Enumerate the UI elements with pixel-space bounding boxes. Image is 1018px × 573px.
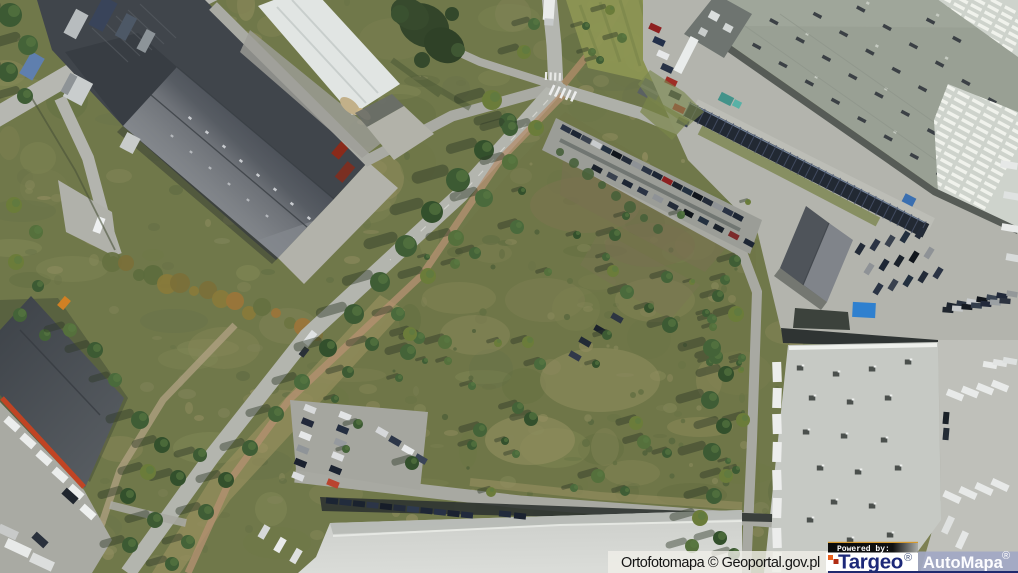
svg-text:®: ® — [904, 552, 912, 564]
svg-text:Targeo: Targeo — [838, 551, 903, 573]
svg-text:AutoMapa: AutoMapa — [923, 554, 1004, 572]
svg-text:Ortofotomapa © Geoportal.gov.p: Ortofotomapa © Geoportal.gov.pl — [621, 555, 820, 571]
svg-text:®: ® — [1002, 550, 1010, 562]
